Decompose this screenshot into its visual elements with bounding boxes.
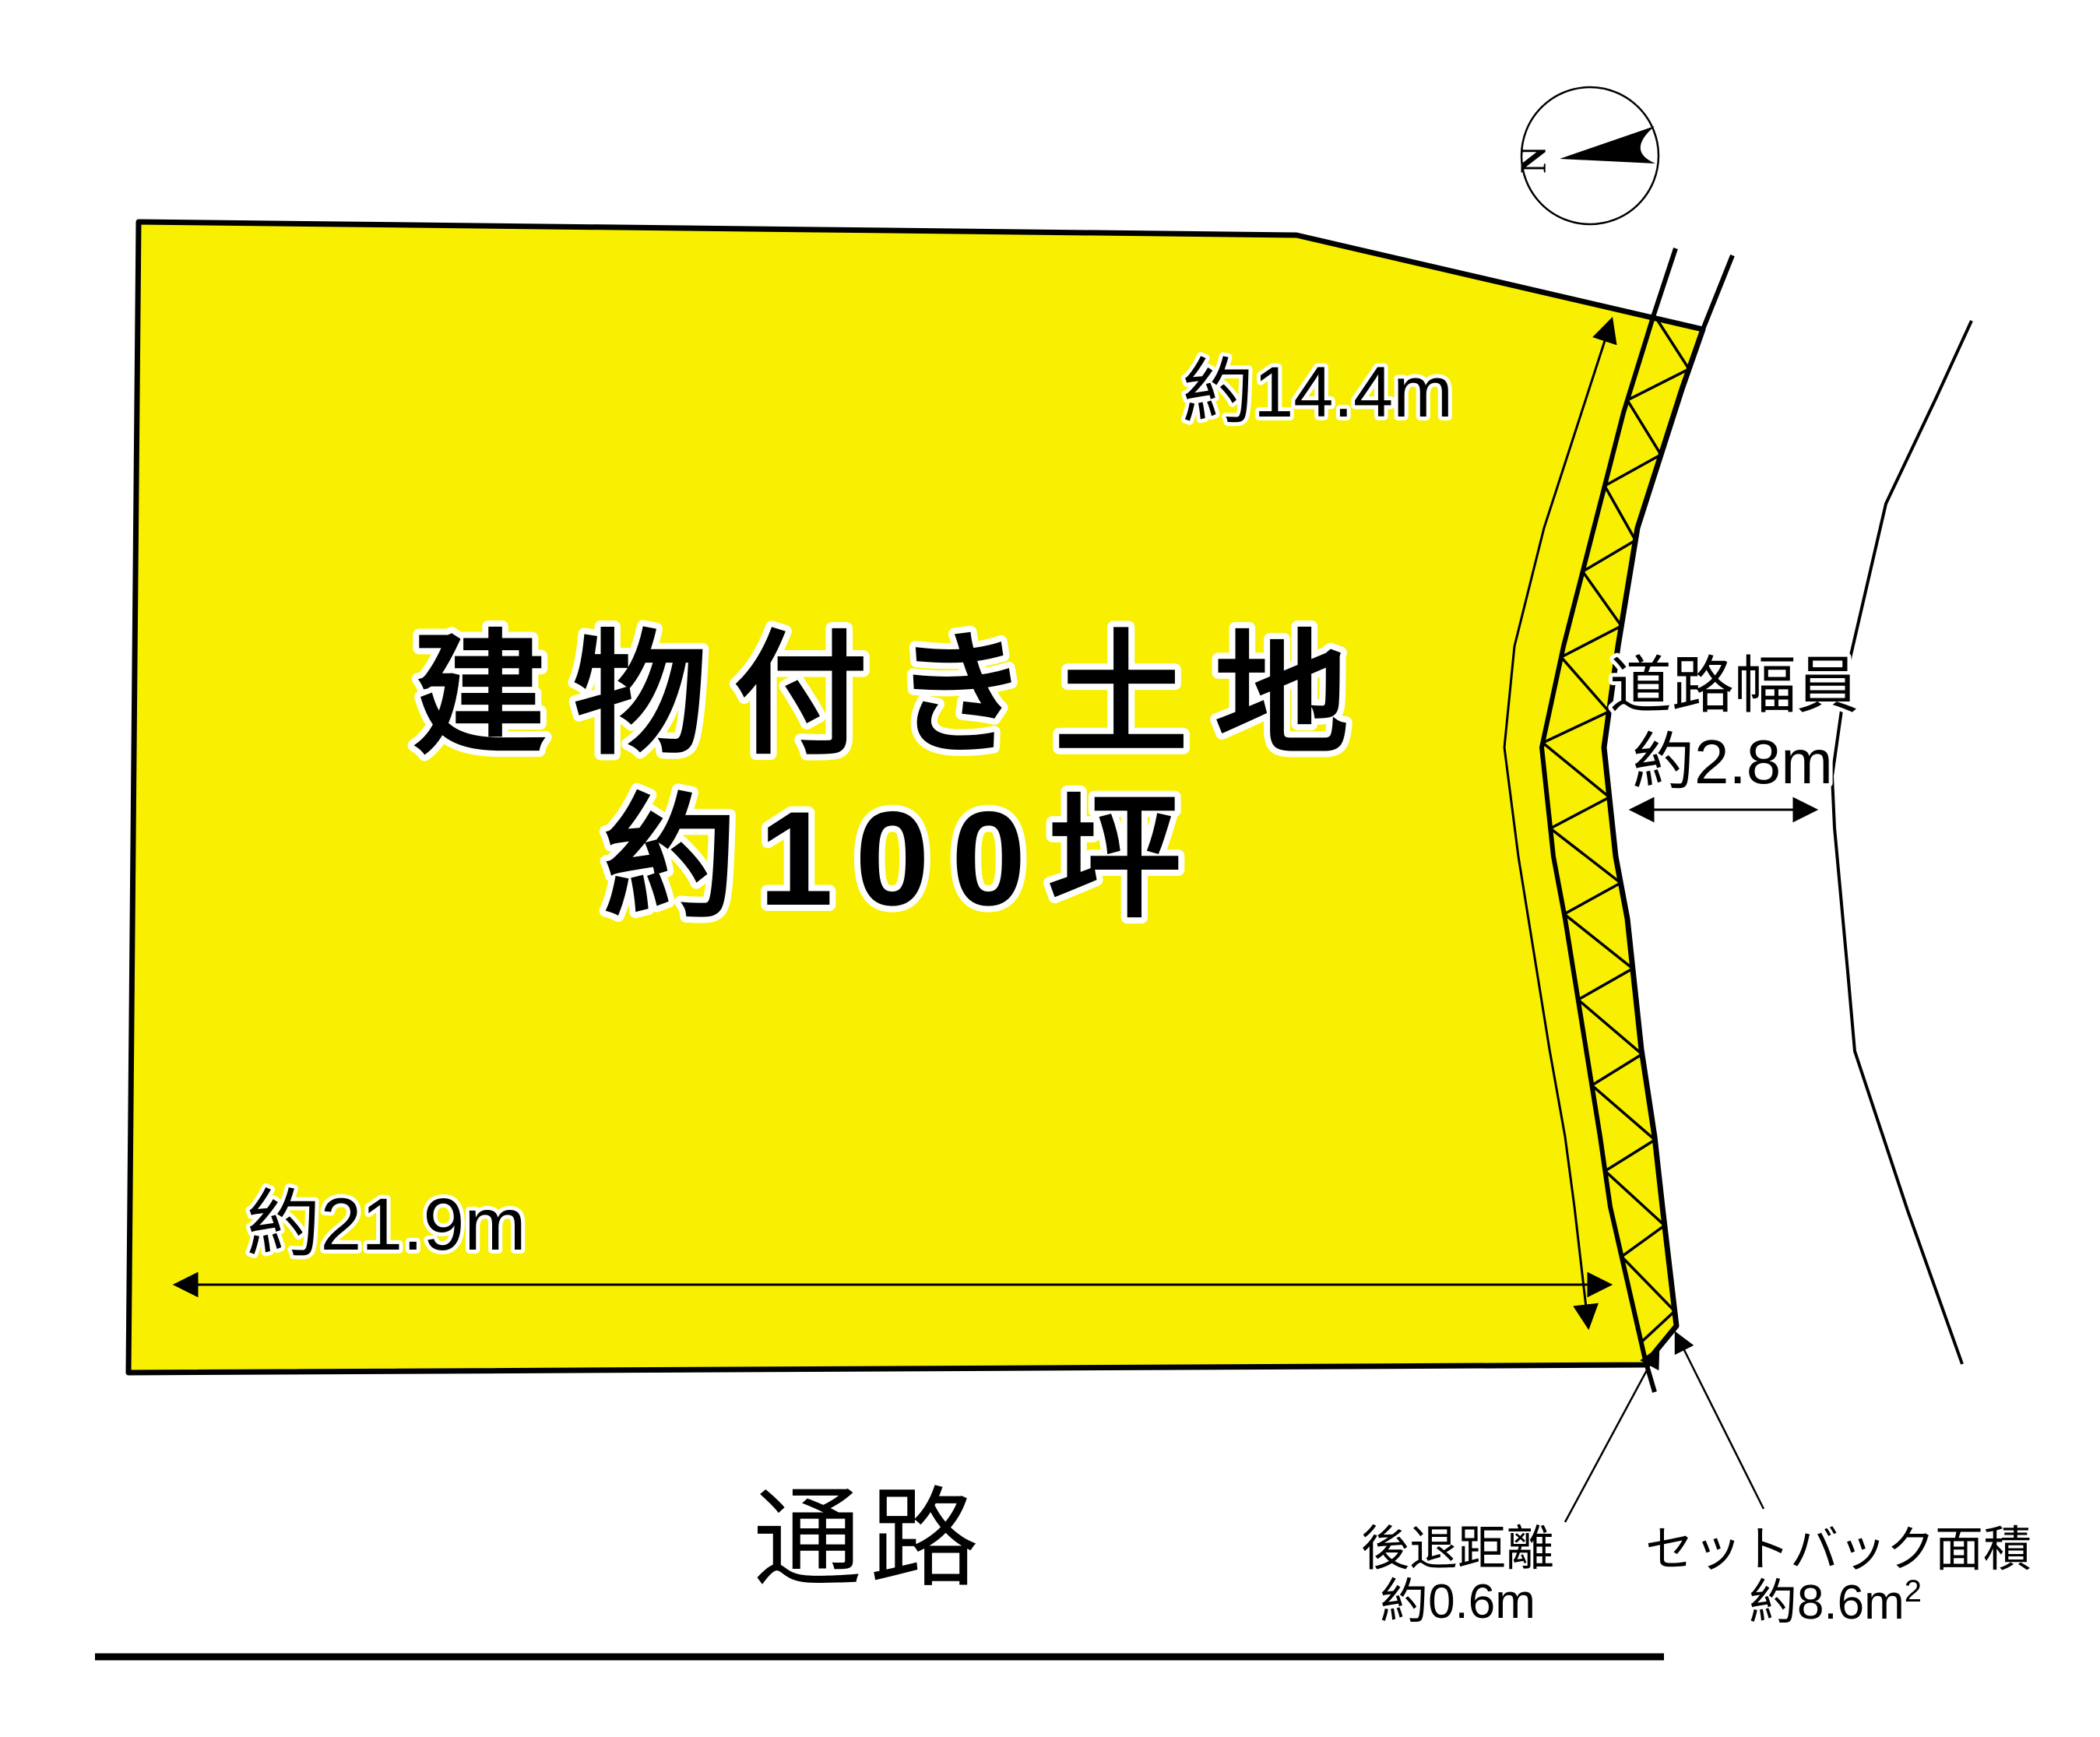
land-plot-diagram: N 建物付き土地 約100坪 約14.4m 約21.9m 道路幅員 約2.8m … (0, 0, 2100, 1737)
setback-area-label-line1: セットバック面積 (1645, 1523, 2031, 1577)
compass-north-label: N (1513, 146, 1554, 173)
passage-label: 通路 (753, 1478, 987, 1600)
road-width-label-line2: 約2.8m (1632, 727, 1833, 796)
setback-area-superscript: 2 (1905, 1574, 1922, 1609)
north-compass: N (1513, 87, 1659, 224)
parcel-title-line1: 建物付き土地 (413, 621, 1375, 770)
parcel-title-line2: 約100坪 (603, 784, 1204, 934)
road-width-label-line1: 道路幅員 (1609, 651, 1859, 720)
leader-setback-distance (1565, 1348, 1659, 1522)
east-dimension-label: 約14.4m (1182, 353, 1453, 432)
setback-area-value: 約8.6m (1749, 1576, 1905, 1630)
south-dimension-label: 約21.9m (246, 1183, 526, 1266)
setback-distance-label-line2: 約0.6m (1380, 1575, 1535, 1629)
setback-area-label-line2: 約8.6m2 (1749, 1574, 1922, 1630)
setback-distance-label-line1: 後退距離 (1361, 1522, 1554, 1576)
road-edge-extension (1703, 255, 1732, 329)
road-far-edge-line (1832, 321, 1972, 1364)
leader-setback-area (1676, 1333, 1764, 1509)
